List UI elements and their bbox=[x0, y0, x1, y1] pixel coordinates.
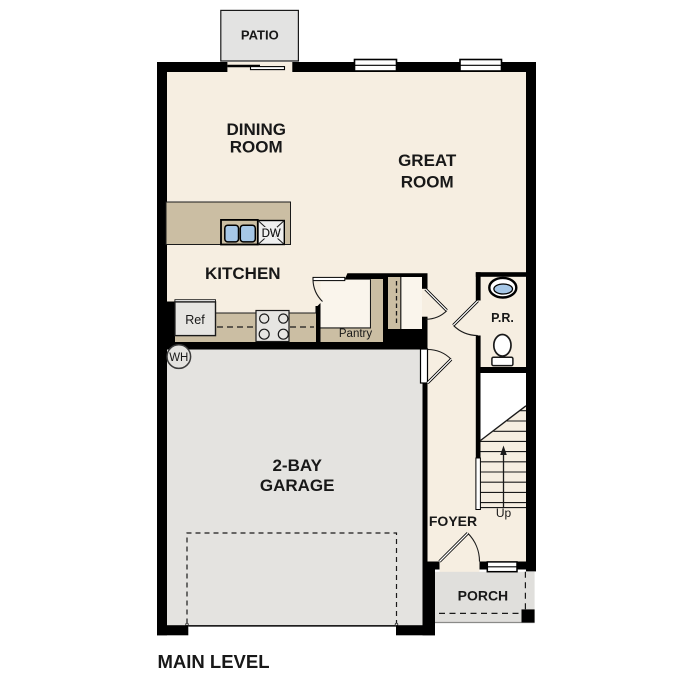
svg-text:WH: WH bbox=[169, 352, 188, 364]
svg-text:DINING: DINING bbox=[226, 120, 286, 139]
svg-text:PORCH: PORCH bbox=[458, 587, 509, 603]
svg-text:MAIN LEVEL: MAIN LEVEL bbox=[158, 651, 270, 672]
svg-text:Up: Up bbox=[496, 506, 512, 520]
svg-text:P.R.: P.R. bbox=[491, 311, 514, 325]
svg-text:2-BAY: 2-BAY bbox=[272, 456, 322, 475]
svg-text:GARAGE: GARAGE bbox=[260, 476, 335, 495]
svg-text:DW: DW bbox=[262, 228, 281, 240]
svg-text:FOYER: FOYER bbox=[429, 513, 477, 529]
svg-text:Ref: Ref bbox=[185, 313, 205, 327]
svg-text:GREAT: GREAT bbox=[398, 151, 457, 170]
svg-text:Pantry: Pantry bbox=[339, 328, 372, 340]
svg-text:KITCHEN: KITCHEN bbox=[205, 264, 281, 283]
svg-text:ROOM: ROOM bbox=[230, 138, 283, 157]
svg-text:PATIO: PATIO bbox=[241, 28, 279, 43]
svg-text:ROOM: ROOM bbox=[401, 172, 454, 191]
